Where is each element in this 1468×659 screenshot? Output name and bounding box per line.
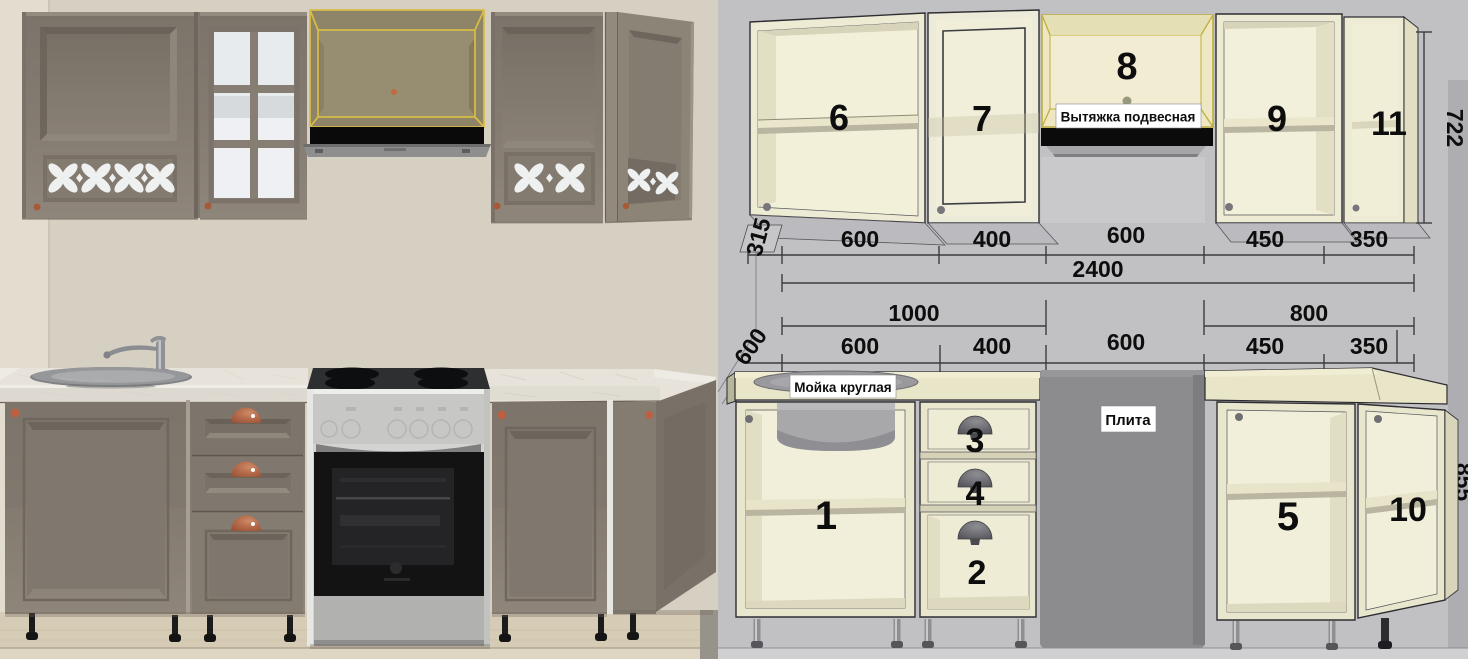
svg-text:350: 350 xyxy=(1350,226,1388,252)
svg-text:5: 5 xyxy=(1277,495,1299,539)
svg-text:400: 400 xyxy=(973,333,1011,359)
svg-text:450: 450 xyxy=(1246,226,1284,252)
svg-text:Мойка круглая: Мойка круглая xyxy=(794,380,891,395)
svg-text:4: 4 xyxy=(966,475,985,513)
svg-text:600: 600 xyxy=(841,226,879,252)
svg-text:3: 3 xyxy=(966,422,985,460)
svg-text:10: 10 xyxy=(1389,491,1427,529)
svg-text:1000: 1000 xyxy=(888,300,939,326)
svg-text:450: 450 xyxy=(1246,333,1284,359)
svg-text:9: 9 xyxy=(1267,98,1287,139)
svg-text:8: 8 xyxy=(1116,46,1137,88)
svg-text:Вытяжка подвесная: Вытяжка подвесная xyxy=(1061,110,1196,125)
svg-text:722: 722 xyxy=(1442,109,1468,147)
svg-text:2: 2 xyxy=(968,554,987,592)
svg-text:7: 7 xyxy=(972,98,992,139)
svg-text:1: 1 xyxy=(815,494,837,538)
svg-text:600: 600 xyxy=(1107,329,1145,355)
svg-text:600: 600 xyxy=(841,333,879,359)
svg-text:350: 350 xyxy=(1350,333,1388,359)
svg-text:Плита: Плита xyxy=(1105,412,1151,429)
svg-text:6: 6 xyxy=(829,97,849,138)
svg-text:11: 11 xyxy=(1371,105,1407,143)
svg-text:2400: 2400 xyxy=(1072,256,1123,282)
svg-text:600: 600 xyxy=(1107,222,1145,248)
svg-text:800: 800 xyxy=(1290,300,1328,326)
svg-text:400: 400 xyxy=(973,226,1011,252)
